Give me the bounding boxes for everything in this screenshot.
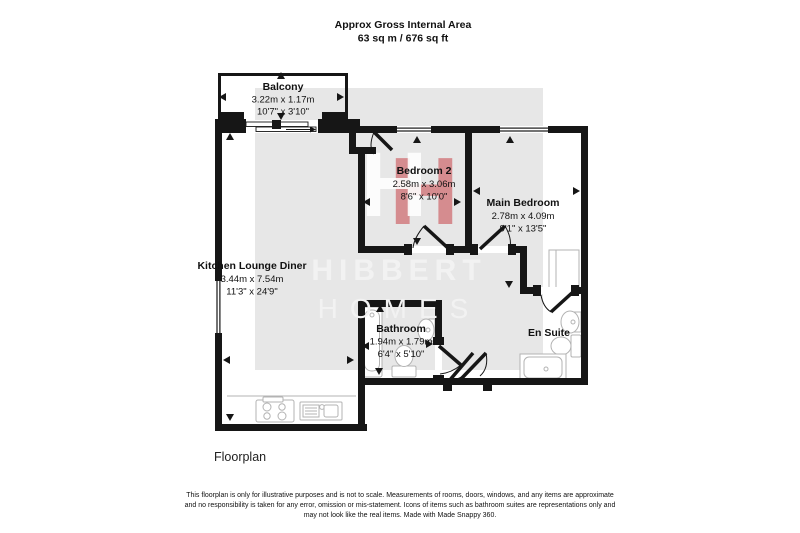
footer-line-2: and no responsibility is taken for any e… [185,502,616,509]
sliding-door-icon [246,120,318,133]
header-area: 63 sq m / 676 sq ft [358,33,449,45]
bedroom2-dims-metric: 2.58m x 3.06m [393,179,456,190]
bedroom2-window [397,126,431,133]
main-bedroom-dims-imperial: 9'1" x 13'5" [500,224,547,235]
shower-tray-icon [520,354,566,381]
bathroom-label: Bathroom [376,323,426,335]
kitchen-lounge-diner-label: Kitchen Lounge Diner [197,260,306,272]
footer-line-3: may not look like the real items. Made w… [304,512,497,519]
hob-icon [256,397,294,422]
kitchen-dims-metric: 3.44m x 7.54m [221,274,284,285]
bedroom2-dims-imperial: 8'6" x 10'0" [401,192,448,203]
main-bedroom-label: Main Bedroom [487,197,560,209]
kitchen-sink-icon [300,402,342,420]
watermark-brand-line1: HIBBERT [311,254,486,287]
floorplan-page: Approx Gross Internal Area 63 sq m / 676… [0,0,800,533]
kitchen-dims-imperial: 11'3" x 24'9" [226,287,277,298]
floorplan-caption: Floorplan [214,450,266,464]
main-bedroom-window [500,126,548,133]
bedroom2-label: Bedroom 2 [397,165,452,177]
wardrobe-icon [549,250,579,291]
watermark-brand-line2: HOMES [318,293,481,324]
balcony-dims-metric: 3.22m x 1.17m [252,95,315,106]
main-bedroom-dims-metric: 2.78m x 4.09m [492,211,555,222]
balcony-label: Balcony [263,81,304,93]
bathroom-dims-metric: 1.94m x 1.79m [370,337,433,348]
bathroom-dims-imperial: 6'4" x 5'10" [378,349,425,360]
kitchen-window [215,281,222,333]
balcony-dims-imperial: 10'7" x 3'10" [257,107,309,118]
header-title: Approx Gross Internal Area [335,19,472,31]
floorplan-svg: Approx Gross Internal Area 63 sq m / 676… [0,0,800,533]
footer-line-1: This floorplan is only for illustrative … [186,492,614,499]
en-suite-label: En Suite [528,327,570,339]
